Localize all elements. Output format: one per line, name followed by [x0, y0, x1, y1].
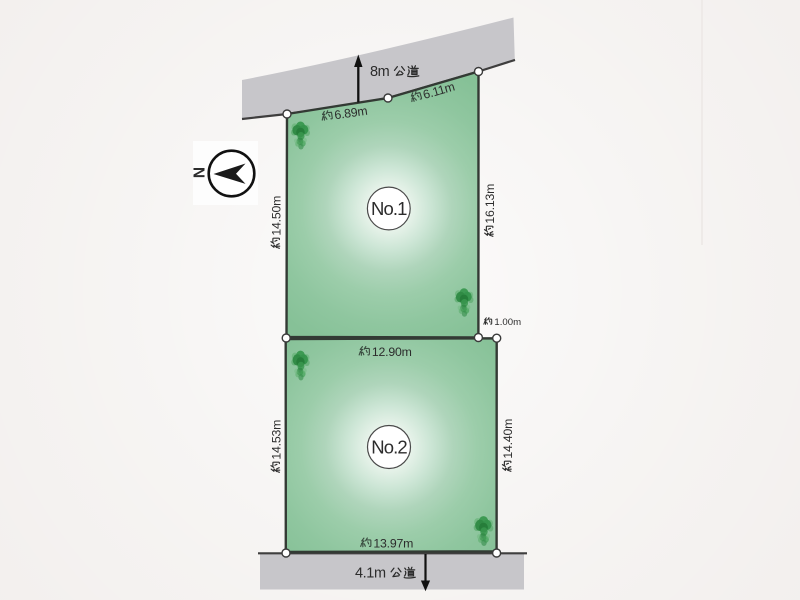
svg-text:12.90m: 12.90m — [372, 345, 412, 359]
svg-text:16.13m: 16.13m — [483, 184, 497, 224]
svg-text:No.1: No.1 — [371, 198, 407, 219]
svg-text:4.1m: 4.1m — [355, 566, 386, 582]
svg-text:8m: 8m — [370, 64, 390, 80]
svg-text:13.97m: 13.97m — [373, 536, 413, 550]
svg-text:No.2: No.2 — [371, 437, 407, 458]
svg-text:14.40m: 14.40m — [501, 419, 515, 459]
svg-text:N: N — [192, 167, 209, 178]
svg-text:1.00m: 1.00m — [494, 317, 521, 328]
svg-text:14.53m: 14.53m — [269, 420, 283, 460]
svg-text:14.50m: 14.50m — [269, 196, 283, 236]
